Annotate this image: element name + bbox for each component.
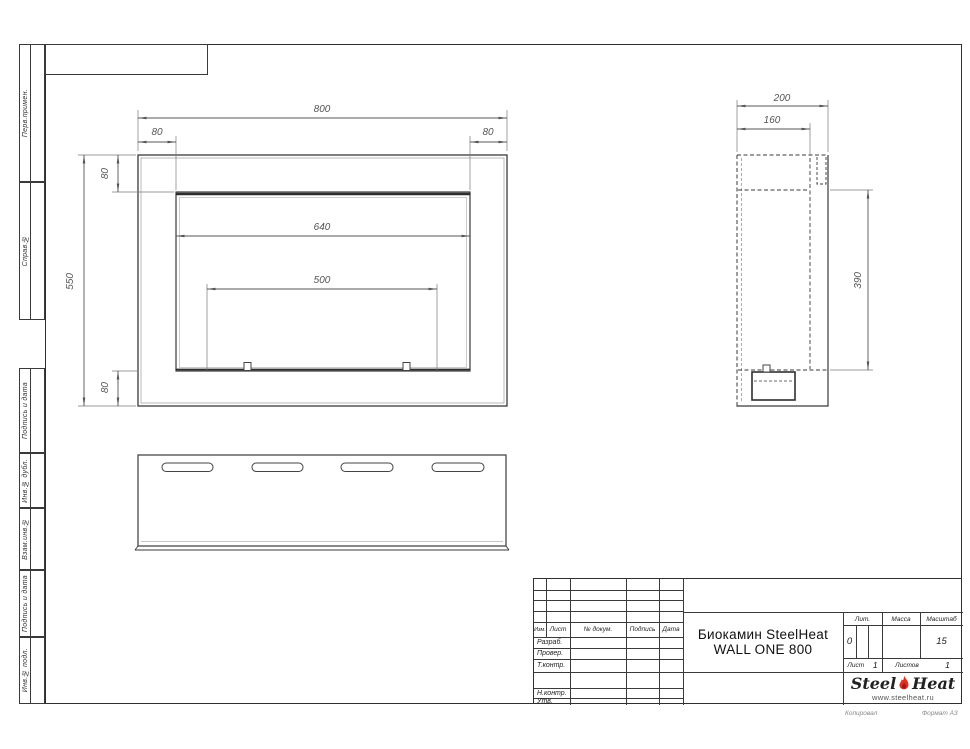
col-podpis: Подпись [626,623,659,636]
margin-box-podpis-data-2: Подпись и дата [19,570,45,637]
row-razrab: Разраб. [537,637,570,648]
margin-box-podpis-data-1: Подпись и дата [19,368,45,453]
title-block-line [534,600,683,601]
document-title-line1: Биокамин SteelHeat [698,627,828,642]
title-block-line [570,579,571,705]
lit-label: Лит. [843,613,882,625]
col-list: Лист [546,623,570,636]
margin-label: Подпись и дата [20,369,31,452]
sheets-label: Листов [895,662,919,669]
margin-label: Перв.примен. [20,45,31,181]
sheet-cell: Лист 1 [843,658,882,672]
row-nkontr: Н.контр. [537,688,570,698]
margin-label-text: Подпись и дата [22,382,29,439]
margin-label-text: Взам.инв.№ [22,518,29,560]
logo-wordmark: Steel Heat [851,675,955,692]
flame-icon [897,675,911,692]
top-left-stamp-box [45,44,208,75]
row-prover: Провер. [537,648,570,659]
document-title-line2: WALL ONE 800 [714,642,813,657]
logo-heat-text: Heat [912,676,955,692]
title-block-line [659,579,660,705]
title-block-line [856,625,857,658]
sheet-label: Лист [847,662,864,669]
margin-label-text: Справ.№ [22,235,29,266]
margin-label: Подпись и дата [20,571,31,636]
margin-box-inv-podl: Инв.№ подл. [19,637,45,704]
col-data: Дата [659,623,683,636]
drawing-sheet: 800 80 80 640 500 80 550 80 200 160 390 … [0,0,970,749]
title-block-line [534,590,683,591]
margin-label-text: Перв.примен. [22,89,29,137]
title-block-line [626,579,627,705]
margin-box-inv-dubl: Инв.№ дубл. [19,453,45,508]
sheets-value: 1 [945,660,950,670]
lit-value: 0 [843,625,856,658]
scale-label: Масштаб [920,613,963,625]
title-block-line [868,625,869,658]
footer-copy-label: Копировал [845,710,877,717]
title-block: Изм. Лист № докум. Подпись Дата Разраб. … [533,578,962,704]
margin-label: Взам.инв.№ [20,509,31,569]
logo-steel-text: Steel [851,676,896,692]
scale-value: 15 [920,625,963,658]
mass-label: Масса [882,613,920,625]
row-tkontr: Т.контр. [537,659,570,672]
margin-label-text: Инв.№ дубл. [22,459,29,503]
steelheat-logo: Steel Heat www.steelheat.ru [843,672,963,704]
logo-url: www.steelheat.ru [872,693,934,702]
sheets-cell: Листов 1 [882,658,963,672]
margin-box-vzam-inv: Взам.инв.№ [19,508,45,570]
col-docnum: № докум. [570,623,626,636]
margin-label: Инв.№ дубл. [20,454,31,507]
document-title: Биокамин SteelHeat WALL ONE 800 [683,612,843,672]
margin-label: Инв.№ подл. [20,638,31,703]
title-block-line [534,611,683,612]
margin-box-perv-primen: Перв.примен. [19,44,45,182]
row-utv: Утв. [537,698,570,705]
sheet-value: 1 [873,660,878,670]
margin-label-text: Инв.№ подл. [22,648,29,692]
margin-label-text: Подпись и дата [22,575,29,632]
footer-format-label: Формат А3 [922,710,958,717]
margin-box-sprav-no: Справ.№ [19,182,45,320]
col-izm: Изм. [534,623,546,636]
margin-label: Справ.№ [20,183,31,319]
